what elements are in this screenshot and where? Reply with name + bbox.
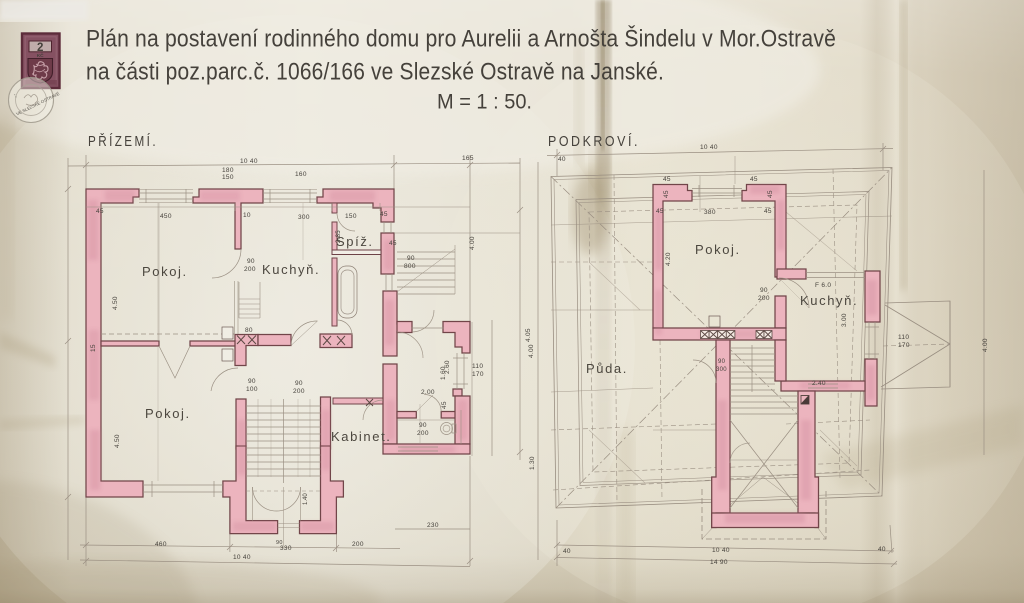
svg-text:na části poz.parc.č. 1066/166: na části poz.parc.č. 1066/166 ve Slezské… [86,59,664,86]
svg-text:F 6.0: F 6.0 [815,282,831,289]
svg-text:170: 170 [472,371,484,378]
svg-text:Plán na postavení rodinného do: Plán na postavení rodinného domu pro Aur… [86,25,836,53]
svg-text:10: 10 [243,212,251,219]
svg-text:170: 170 [898,342,910,349]
svg-text:45: 45 [663,176,671,183]
svg-text:4.00: 4.00 [469,236,476,250]
svg-text:Pokoj.: Pokoj. [145,406,191,421]
svg-text:4.00: 4.00 [982,338,989,352]
svg-text:45: 45 [96,208,104,215]
svg-text:460: 460 [155,541,167,548]
svg-text:300: 300 [716,367,727,373]
svg-text:45: 45 [441,401,448,409]
svg-text:40: 40 [563,548,571,555]
svg-text:Kuchyň.: Kuchyň. [800,293,858,308]
svg-text:4.20: 4.20 [665,252,672,266]
svg-text:45: 45 [750,176,758,183]
svg-text:2: 2 [37,42,43,54]
svg-text:90: 90 [407,255,415,262]
svg-text:45: 45 [663,190,670,198]
svg-text:200: 200 [352,541,364,548]
svg-text:10 40: 10 40 [712,547,730,554]
svg-text:45: 45 [380,211,388,218]
svg-text:14 90: 14 90 [710,559,728,566]
svg-text:90: 90 [248,378,256,385]
svg-text:200: 200 [758,295,770,302]
svg-text:Pokoj.: Pokoj. [695,242,741,257]
svg-text:80: 80 [245,327,253,334]
svg-text:200: 200 [293,388,305,395]
svg-text:10 40: 10 40 [240,158,258,165]
svg-text:1.30: 1.30 [529,456,536,470]
svg-text:100: 100 [246,386,258,393]
svg-text:450: 450 [160,213,172,220]
svg-text:Kuchyň.: Kuchyň. [262,262,320,277]
svg-text:1.40: 1.40 [303,493,309,505]
svg-text:90: 90 [718,359,726,365]
svg-text:Pokoj.: Pokoj. [142,264,188,279]
svg-text:4.50: 4.50 [112,296,119,310]
svg-text:4.00: 4.00 [528,344,535,358]
svg-text:10 40: 10 40 [233,554,251,561]
svg-text:380: 380 [704,209,716,216]
svg-text:330: 330 [280,545,292,552]
svg-text:110: 110 [898,334,909,341]
svg-text:45: 45 [764,208,772,215]
svg-text:PODKROVÍ.: PODKROVÍ. [548,133,640,150]
svg-text:800: 800 [404,263,416,270]
svg-text:40: 40 [558,156,566,163]
svg-text:160: 160 [295,171,307,178]
svg-text:10 40: 10 40 [700,144,718,151]
svg-text:180: 180 [222,167,234,174]
svg-text:230: 230 [427,522,439,529]
svg-text:PŘÍZEMÍ.: PŘÍZEMÍ. [88,133,158,150]
svg-text:45: 45 [389,240,397,247]
svg-text:90: 90 [247,258,255,265]
svg-text:Kabinet.: Kabinet. [331,429,392,444]
svg-text:300: 300 [298,214,310,221]
svg-text:45: 45 [656,208,664,215]
svg-text:200: 200 [417,430,429,437]
svg-text:2.00: 2.00 [421,389,435,396]
svg-text:4.05: 4.05 [525,328,532,342]
svg-text:90: 90 [295,380,303,387]
svg-text:2.60: 2.60 [444,360,451,374]
svg-text:15: 15 [90,344,97,352]
svg-text:Půda.: Půda. [586,361,628,376]
svg-text:110: 110 [472,363,483,370]
svg-text:45: 45 [767,190,774,198]
svg-text:90: 90 [419,422,427,429]
svg-text:M = 1 : 50.: M = 1 : 50. [437,91,532,114]
svg-text:2.40: 2.40 [812,380,826,387]
svg-text:150: 150 [345,213,357,220]
svg-text:3.00: 3.00 [841,313,848,327]
svg-text:90: 90 [760,287,768,294]
svg-text:2.85: 2.85 [336,230,342,243]
svg-text:165: 165 [462,155,474,162]
svg-text:4.50: 4.50 [114,434,121,448]
svg-text:200: 200 [244,266,256,273]
svg-text:40: 40 [878,546,886,553]
svg-text:150: 150 [222,174,234,181]
